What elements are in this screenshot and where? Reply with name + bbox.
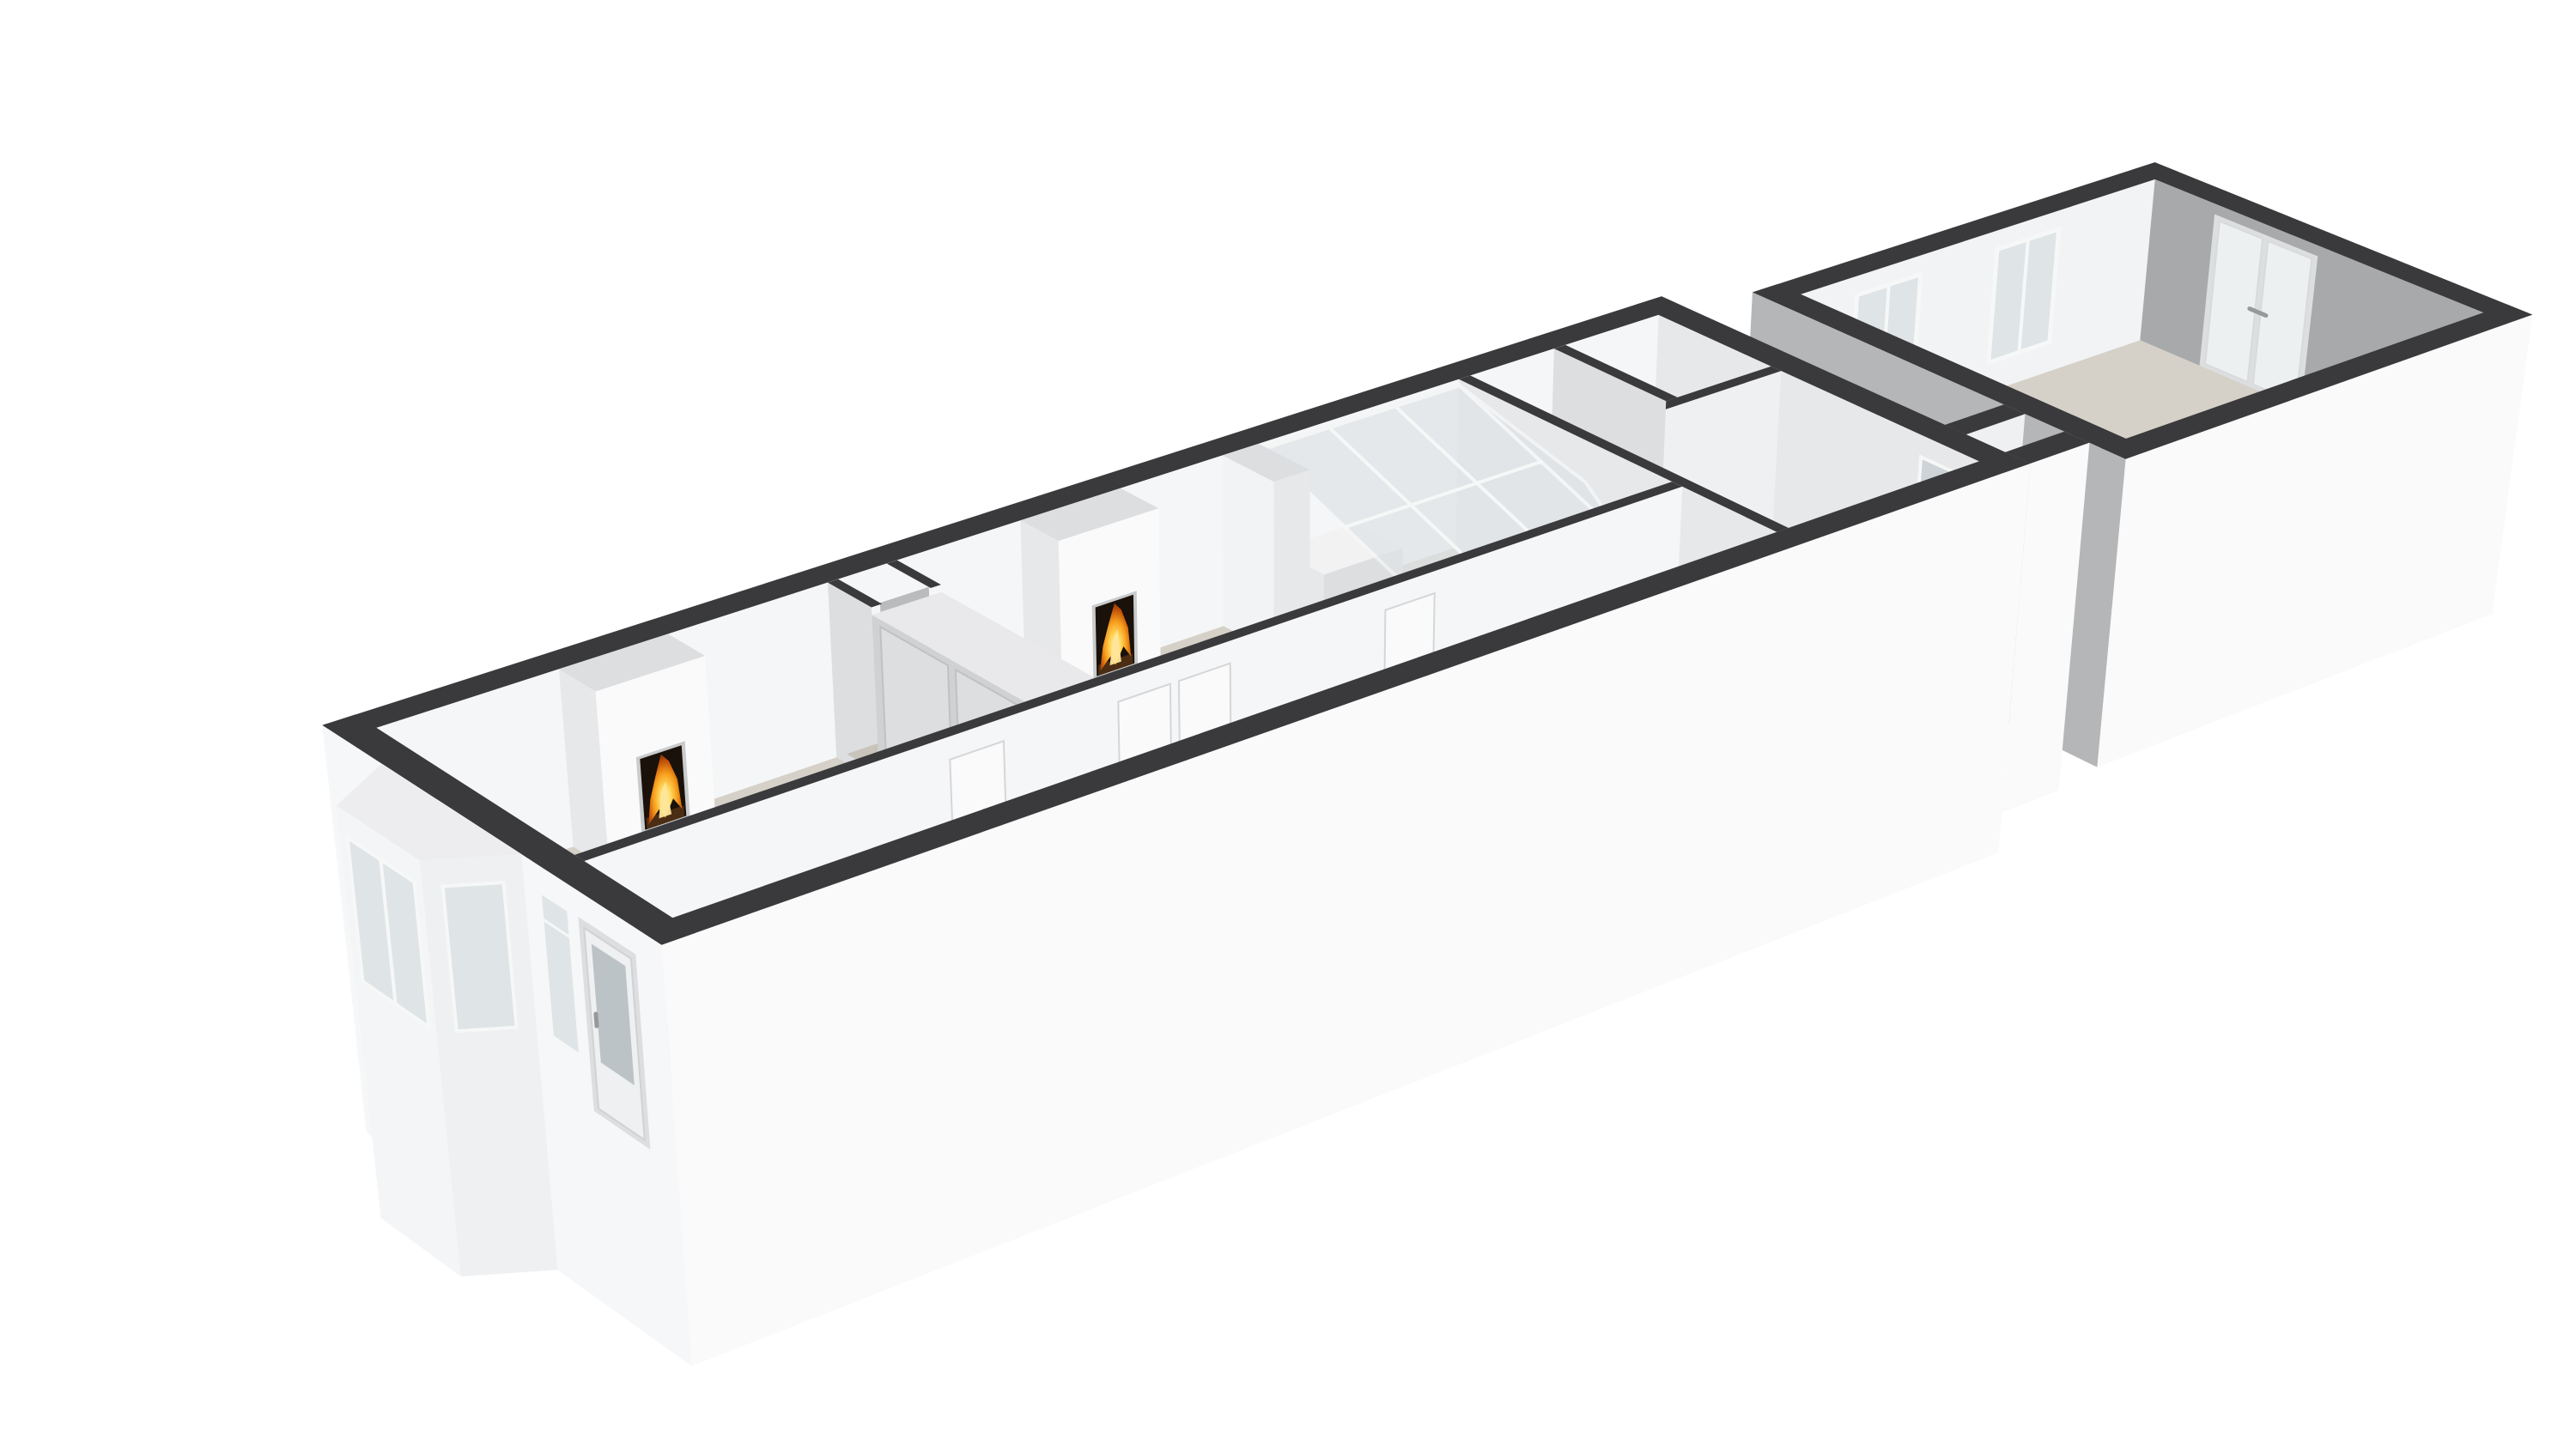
bay-window-right bbox=[443, 882, 517, 1031]
floorplan-page bbox=[0, 0, 2576, 1449]
floorplan-3d-render bbox=[0, 0, 2576, 1449]
entrance-door-handle bbox=[596, 1014, 597, 1026]
